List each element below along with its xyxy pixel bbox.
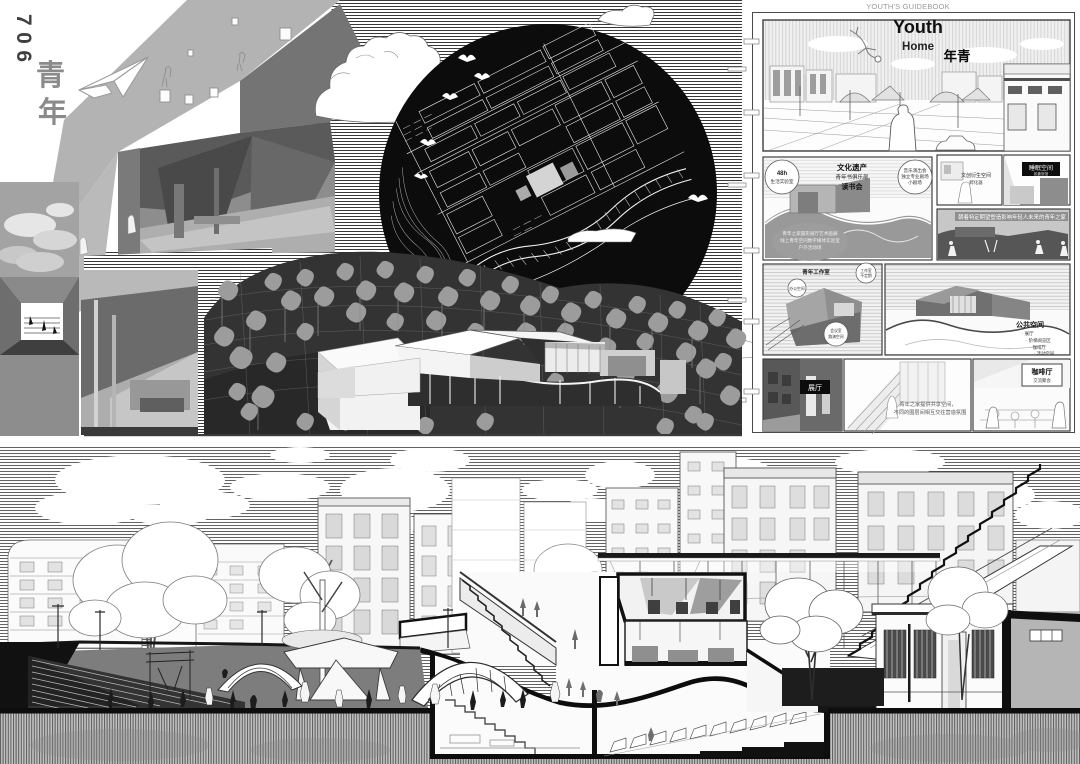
svg-text:公共空间: 公共空间 <box>1016 320 1044 329</box>
svg-text:青年之家提供共享空间，: 青年之家提供共享空间， <box>899 400 956 408</box>
svg-text:生活实验室: 生活实验室 <box>771 178 794 185</box>
svg-text:会议室: 会议室 <box>830 328 842 333</box>
svg-text:办公空间: 办公空间 <box>789 286 804 291</box>
svg-text:年青: 年青 <box>944 48 971 64</box>
svg-text:不定期: 不定期 <box>860 273 872 278</box>
svg-text:文创衍生空间: 文创衍生空间 <box>961 172 991 179</box>
svg-text:年: 年 <box>38 95 67 129</box>
svg-text:48h: 48h <box>777 171 788 177</box>
svg-text:小剧场: 小剧场 <box>908 179 922 186</box>
svg-text:Home: Home <box>902 41 934 53</box>
svg-text:Youth: Youth <box>893 17 943 37</box>
svg-text:· 咖啡厅: · 咖啡厅 <box>1030 344 1046 351</box>
svg-text:· 活动空间: · 活动空间 <box>1034 350 1054 357</box>
svg-text:706: 706 <box>12 14 35 62</box>
svg-text:YOUTH'S GUIDEBOOK: YOUTH'S GUIDEBOOK <box>866 2 950 11</box>
svg-text:朝着特定期望塑造影响年轻人未来的青年之家: 朝着特定期望塑造影响年轻人未来的青年之家 <box>958 213 1066 221</box>
svg-text:青年之家圆形展厅艺术画廊: 青年之家圆形展厅艺术画廊 <box>782 230 838 237</box>
svg-text:咖啡厅: 咖啡厅 <box>1032 367 1053 376</box>
svg-text:不同的圈层间相互交往营造氛围: 不同的圈层间相互交往营造氛围 <box>894 408 967 416</box>
svg-text:读书会: 读书会 <box>842 182 864 191</box>
svg-text:交流聚会: 交流聚会 <box>1033 377 1051 384</box>
svg-text:青年书俱乐部: 青年书俱乐部 <box>835 173 869 181</box>
svg-text:· 阶梯阅览区: · 阶梯阅览区 <box>1026 337 1051 344</box>
svg-text:青年工作室: 青年工作室 <box>802 268 830 276</box>
svg-text:工作室: 工作室 <box>860 268 872 273</box>
svg-text:展厅: 展厅 <box>808 384 822 392</box>
svg-text:音乐演出会: 音乐演出会 <box>904 167 927 174</box>
svg-text:户外活动场: 户外活动场 <box>799 244 822 251</box>
svg-text:路演空间: 路演空间 <box>828 334 843 339</box>
svg-text:文化遗产: 文化遗产 <box>837 162 867 172</box>
svg-text:胶囊旅馆: 胶囊旅馆 <box>1034 171 1049 176</box>
svg-text:孵化器: 孵化器 <box>969 179 983 186</box>
svg-text:线上青年空间数字媒体实验室: 线上青年空间数字媒体实验室 <box>780 237 840 244</box>
svg-text:睡眠空间: 睡眠空间 <box>1029 164 1053 172</box>
svg-text:青: 青 <box>36 59 65 92</box>
svg-text:独立专业剧场: 独立专业剧场 <box>901 173 929 180</box>
